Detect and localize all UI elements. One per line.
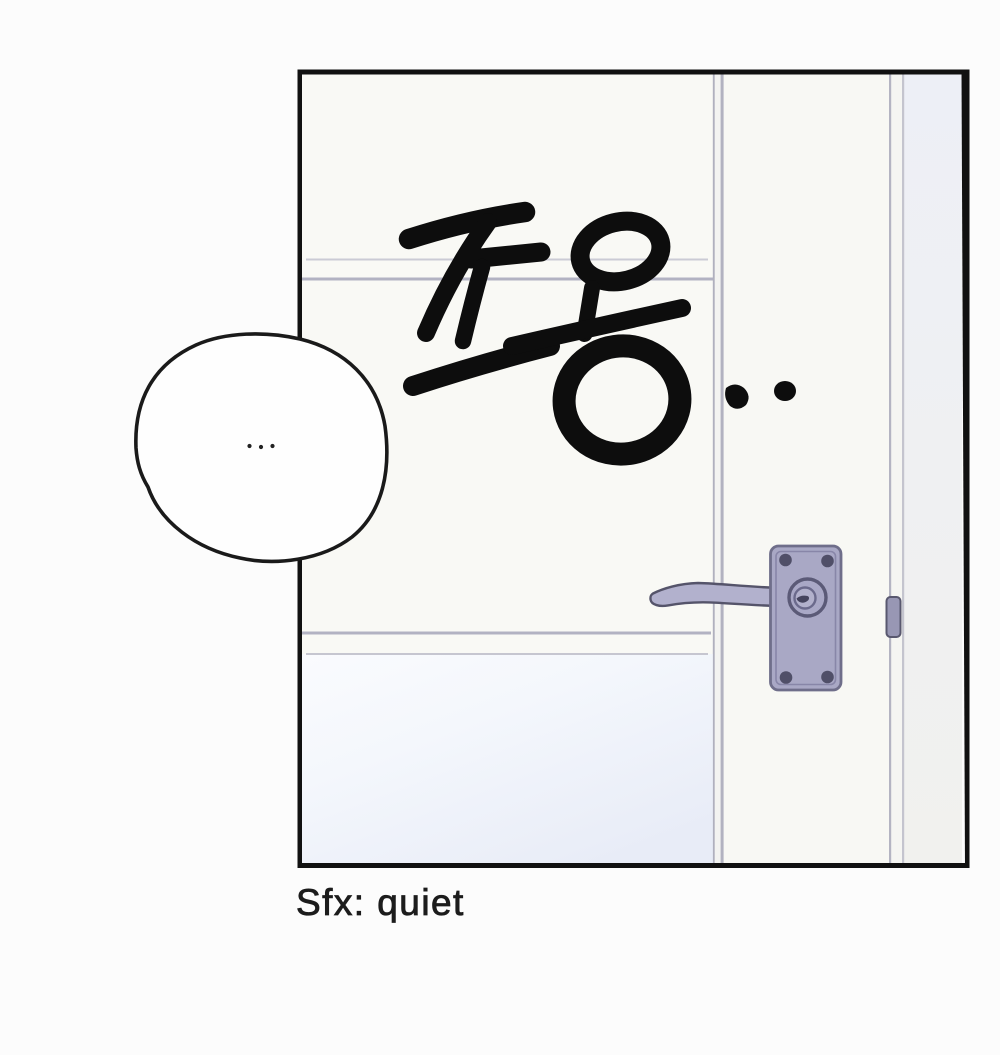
svg-text:Sfx: quiet: Sfx: quiet	[296, 882, 465, 923]
